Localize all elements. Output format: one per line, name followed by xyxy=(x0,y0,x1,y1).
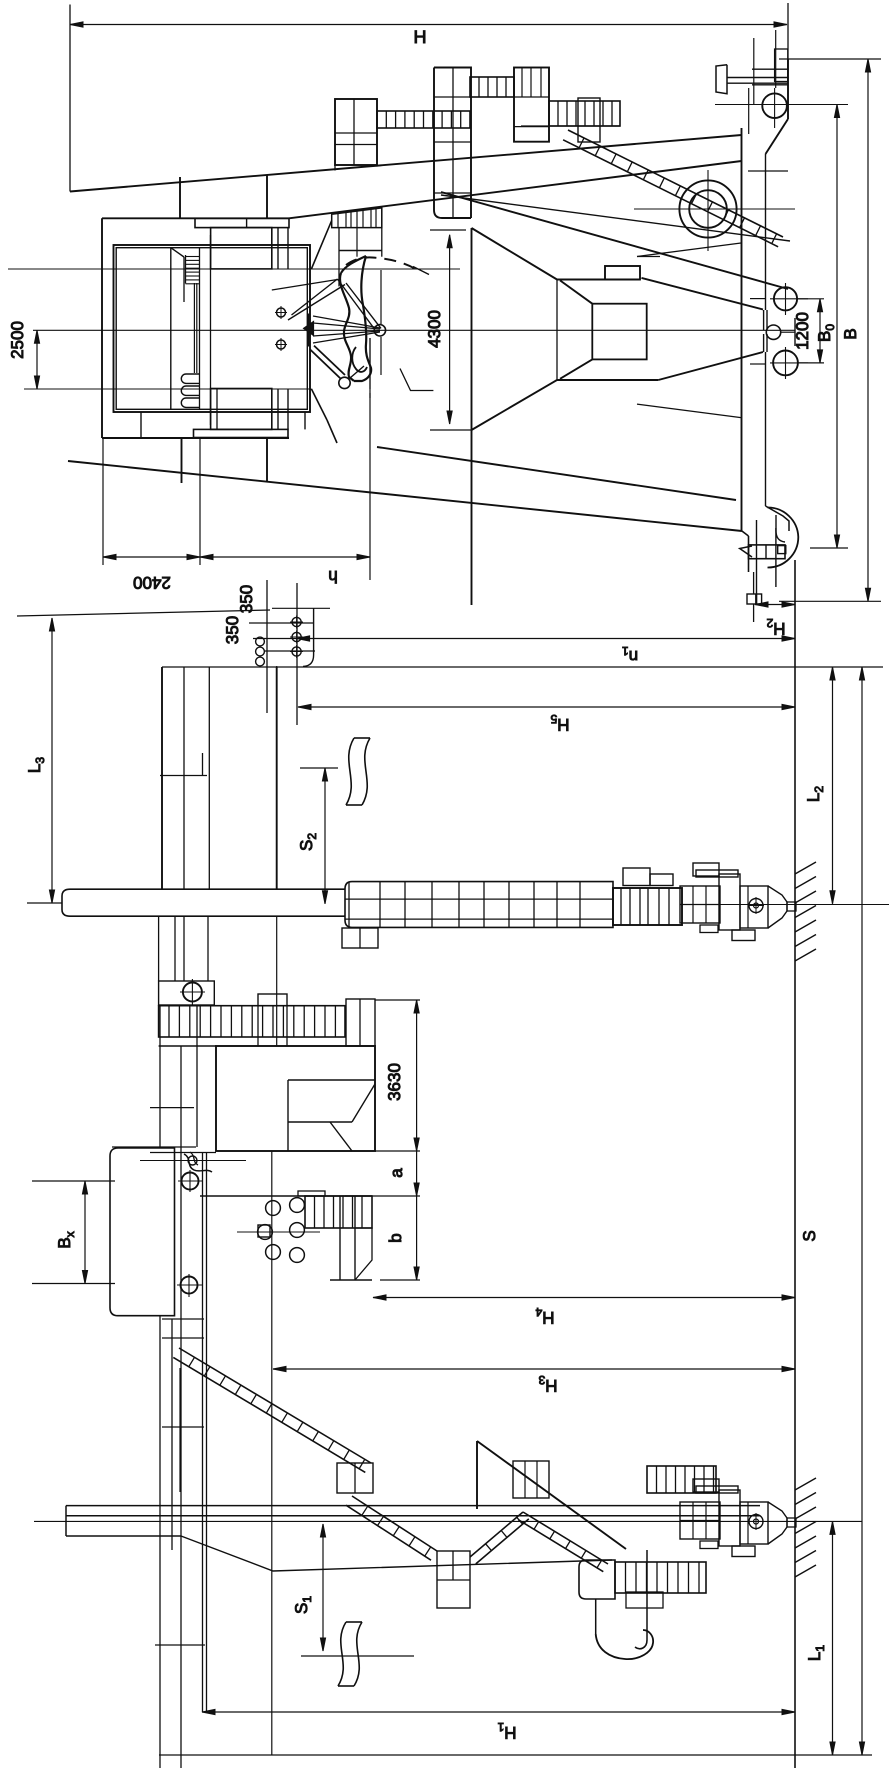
svg-text:1200: 1200 xyxy=(793,312,812,350)
svg-text:350: 350 xyxy=(223,616,242,644)
svg-text:H: H xyxy=(414,27,427,47)
svg-text:B: B xyxy=(841,328,860,339)
svg-text:4300: 4300 xyxy=(425,310,444,348)
svg-text:2500: 2500 xyxy=(8,321,27,359)
svg-text:a: a xyxy=(387,1168,406,1178)
svg-text:2400: 2400 xyxy=(133,573,171,592)
svg-text:h: h xyxy=(328,567,337,586)
svg-text:b: b xyxy=(386,1233,405,1242)
svg-text:S: S xyxy=(800,1230,819,1241)
svg-text:3630: 3630 xyxy=(385,1063,404,1101)
svg-text:350: 350 xyxy=(237,585,256,613)
